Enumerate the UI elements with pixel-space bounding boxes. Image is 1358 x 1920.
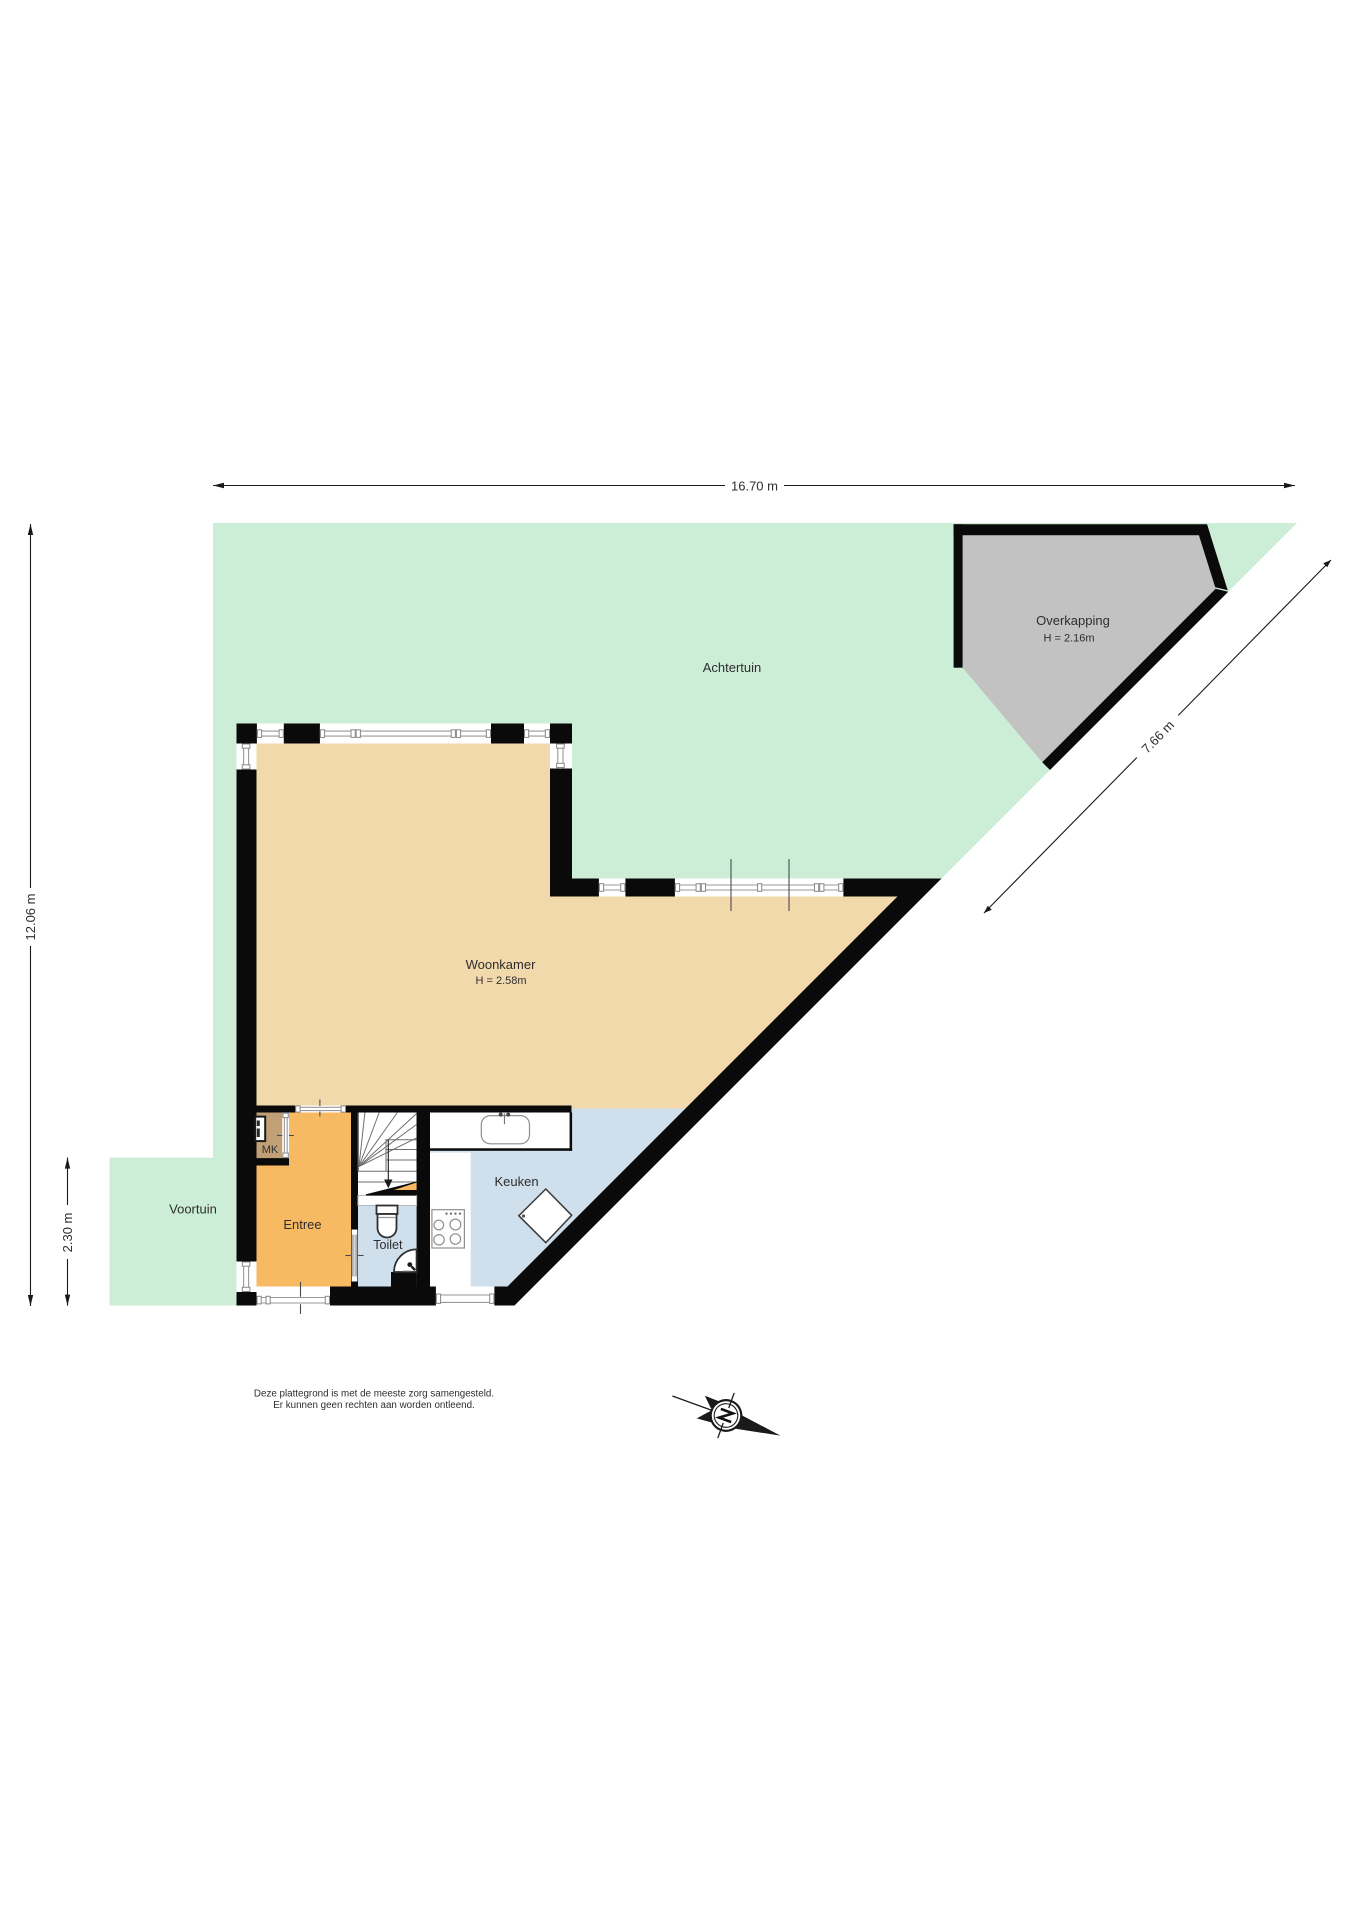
svg-text:Er kunnen geen rechten aan wor: Er kunnen geen rechten aan worden ontlee… bbox=[273, 1400, 475, 1411]
svg-text:Entree: Entree bbox=[283, 1217, 321, 1232]
svg-text:Keuken: Keuken bbox=[494, 1174, 538, 1189]
svg-text:H = 2.58m: H = 2.58m bbox=[475, 975, 526, 987]
svg-text:12.06 m: 12.06 m bbox=[23, 894, 38, 941]
svg-text:16.70 m: 16.70 m bbox=[731, 479, 778, 494]
svg-text:MK: MK bbox=[262, 1144, 279, 1156]
svg-text:Woonkamer: Woonkamer bbox=[466, 957, 537, 972]
svg-text:2.30 m: 2.30 m bbox=[60, 1213, 75, 1253]
svg-text:Deze plattegrond is met de mee: Deze plattegrond is met de meeste zorg s… bbox=[254, 1389, 494, 1400]
svg-text:Toilet: Toilet bbox=[373, 1238, 403, 1252]
svg-text:Voortuin: Voortuin bbox=[169, 1202, 217, 1217]
svg-text:Overkapping: Overkapping bbox=[1036, 613, 1110, 628]
svg-text:H = 2.16m: H = 2.16m bbox=[1043, 633, 1094, 645]
svg-text:Achtertuin: Achtertuin bbox=[703, 660, 762, 675]
